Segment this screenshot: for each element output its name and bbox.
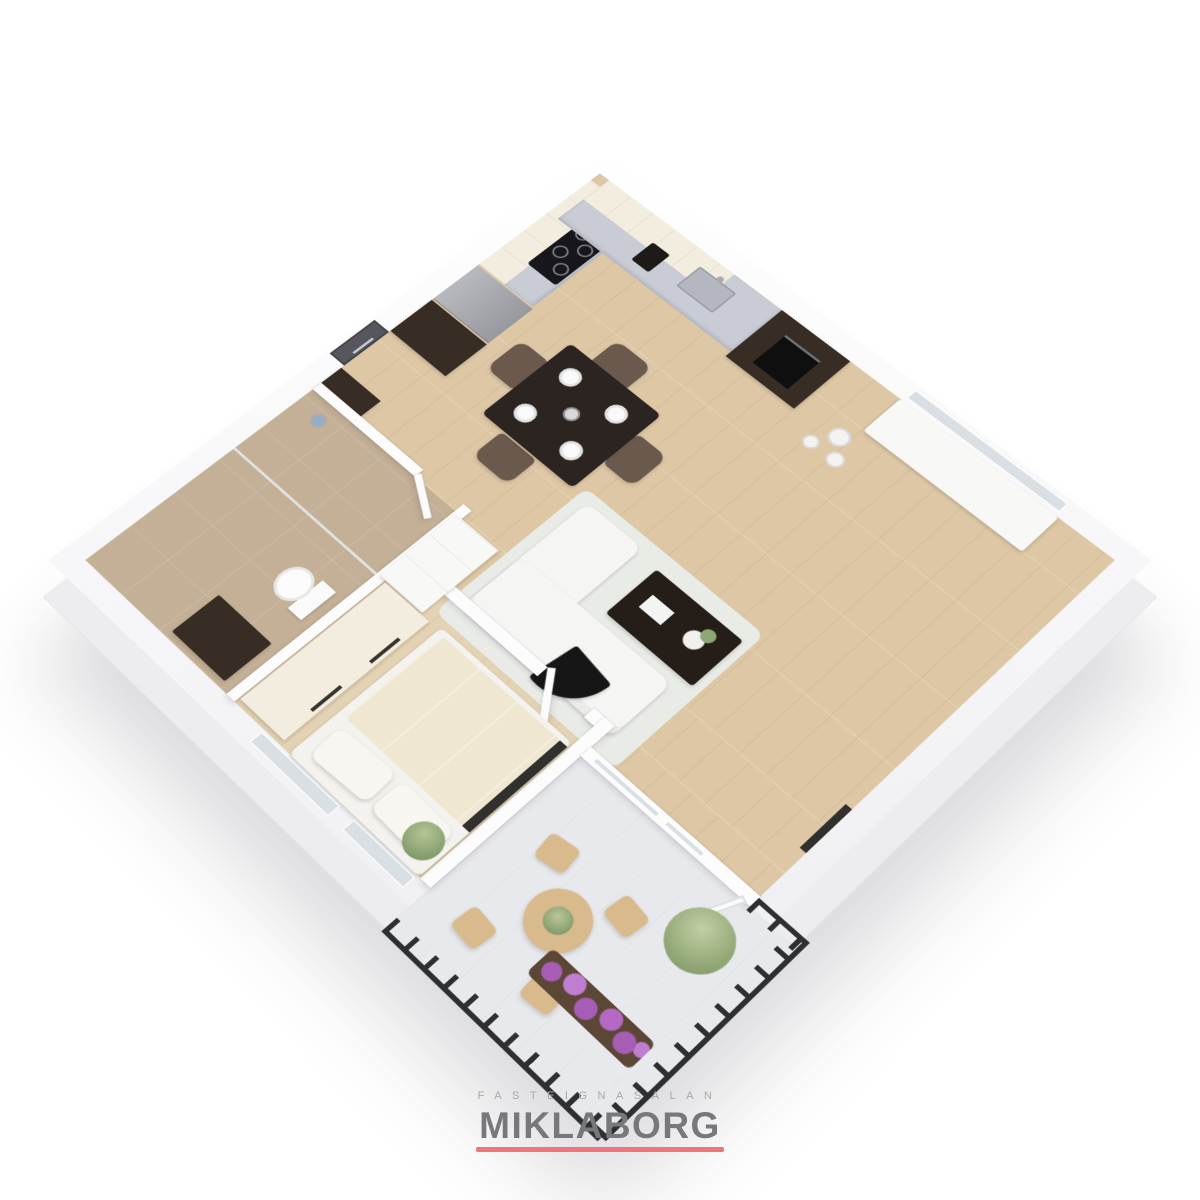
oven-icon [753,335,821,389]
burner-icon [549,243,572,261]
apartment-building [48,149,1151,1089]
centerpiece-icon [559,404,583,424]
floor-plan-scene [0,0,1200,1200]
plate-icon [555,437,588,464]
potted-plant-icon [536,901,579,941]
plate-icon [554,365,586,391]
plate-icon [600,401,633,427]
brand-underline [476,1147,724,1152]
brand-logo: FASTEIGNASALAN MIKLABORG [0,1090,1200,1152]
plate-icon [509,400,542,426]
brand-tagline: FASTEIGNASALAN [0,1090,1200,1102]
brand-name: MIKLABORG [0,1107,1200,1144]
book-icon [639,595,675,625]
